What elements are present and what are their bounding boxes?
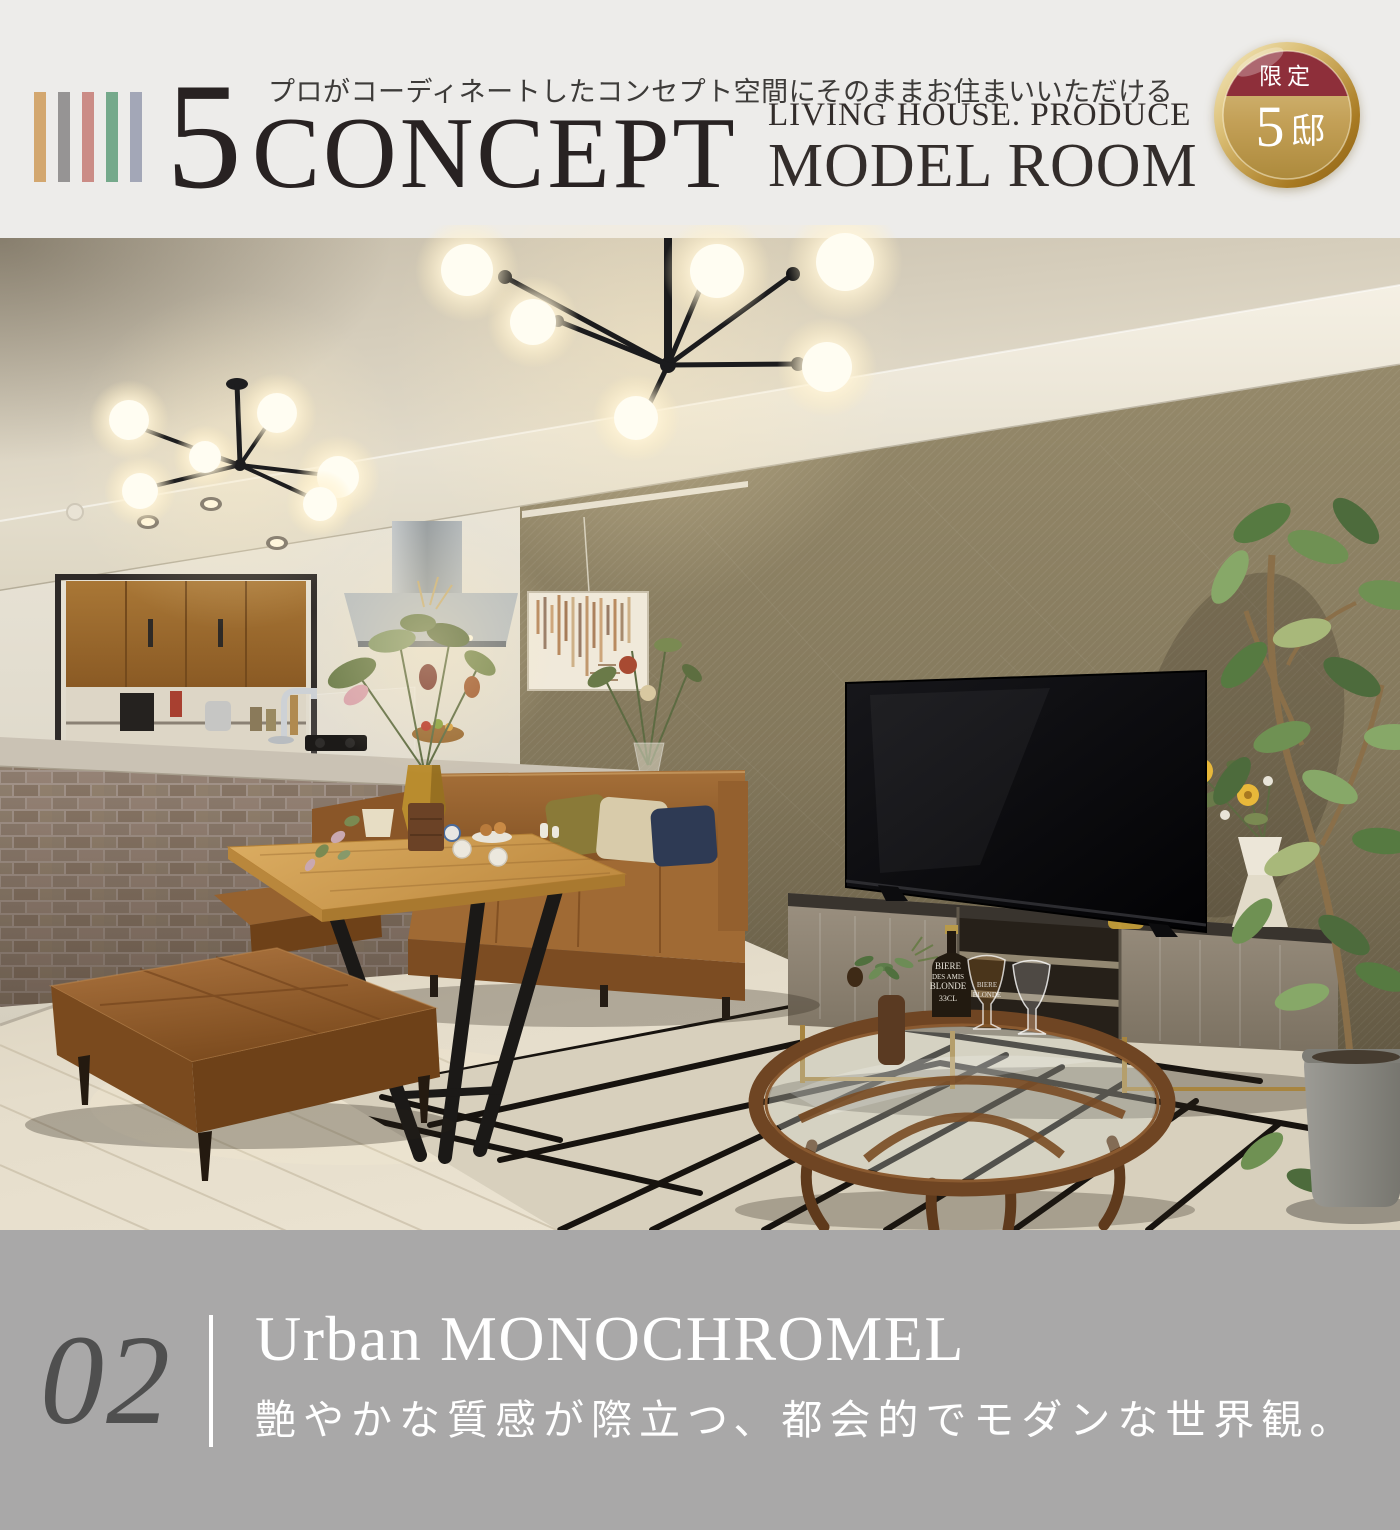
badge-unit: 邸 — [1290, 112, 1325, 151]
concept-count: 5 — [166, 60, 242, 212]
brand-stripe-2 — [58, 92, 70, 182]
limited-badge-medal: 限定 5 邸 — [1212, 40, 1362, 190]
page: プロがコーディネートしたコンセプト空間にそのままお住まいいただける 5 CONC… — [0, 0, 1400, 1530]
concept-section: 02 Urban MONOCHROMEL 艶やかな質感が際立つ、都会的でモダンな… — [0, 1230, 1400, 1530]
concept-subtitle-ja: 艶やかな質感が際立つ、都会的でモダンな世界観。 — [255, 1400, 1357, 1441]
brand-stripe-5 — [130, 92, 142, 182]
brand-stripe-4 — [106, 92, 118, 182]
cream-pot — [362, 809, 394, 837]
pinecone — [847, 967, 863, 987]
bottle-label-line3: BLONDE — [930, 981, 967, 991]
concept-index: 02 — [40, 1316, 172, 1444]
badge-limited-label: 限定 — [1259, 64, 1315, 89]
cushion-navy — [650, 805, 718, 867]
header-title-block: 5 CONCEPT — [166, 60, 738, 212]
brand-stripe-3 — [82, 92, 94, 182]
brand-stripes — [34, 92, 142, 182]
sofa-arm — [718, 781, 748, 931]
bottle-label-line1: BIERE — [935, 961, 962, 971]
model-room-line: MODEL ROOM — [768, 135, 1198, 197]
brand-stripe-1 — [34, 92, 46, 182]
produce-line: LIVING HOUSE. PRODUCE — [768, 99, 1198, 132]
header: プロがコーディネートしたコンセプト空間にそのままお住まいいただける 5 CONC… — [0, 0, 1400, 225]
coffee-maker — [120, 693, 154, 731]
badge-count: 5 — [1256, 94, 1285, 159]
smoke-detector — [67, 504, 83, 520]
concept-title-en: Urban MONOCHROMEL — [255, 1307, 965, 1371]
red-package — [170, 691, 182, 717]
model-room-photo: BIERE DES AMIS BLONDE 33CL BIERE BLONDE — [0, 225, 1400, 1230]
kettle — [205, 701, 231, 731]
bottle-label-line2: DES AMIS — [932, 973, 964, 981]
bottle-label-line4: 33CL — [939, 994, 957, 1003]
brown-vase — [878, 995, 905, 1065]
limited-badge: 限定 5 邸 — [1212, 40, 1362, 190]
produce-block: LIVING HOUSE. PRODUCE MODEL ROOM — [768, 99, 1198, 197]
divider-line — [209, 1315, 213, 1447]
svg-text:BLONDE: BLONDE — [973, 991, 1001, 999]
wood-sculpture — [408, 803, 444, 851]
television — [846, 671, 1206, 937]
concept-title: CONCEPT — [252, 103, 738, 205]
svg-text:BIERE: BIERE — [977, 981, 997, 989]
concrete-planter — [1302, 1049, 1400, 1207]
